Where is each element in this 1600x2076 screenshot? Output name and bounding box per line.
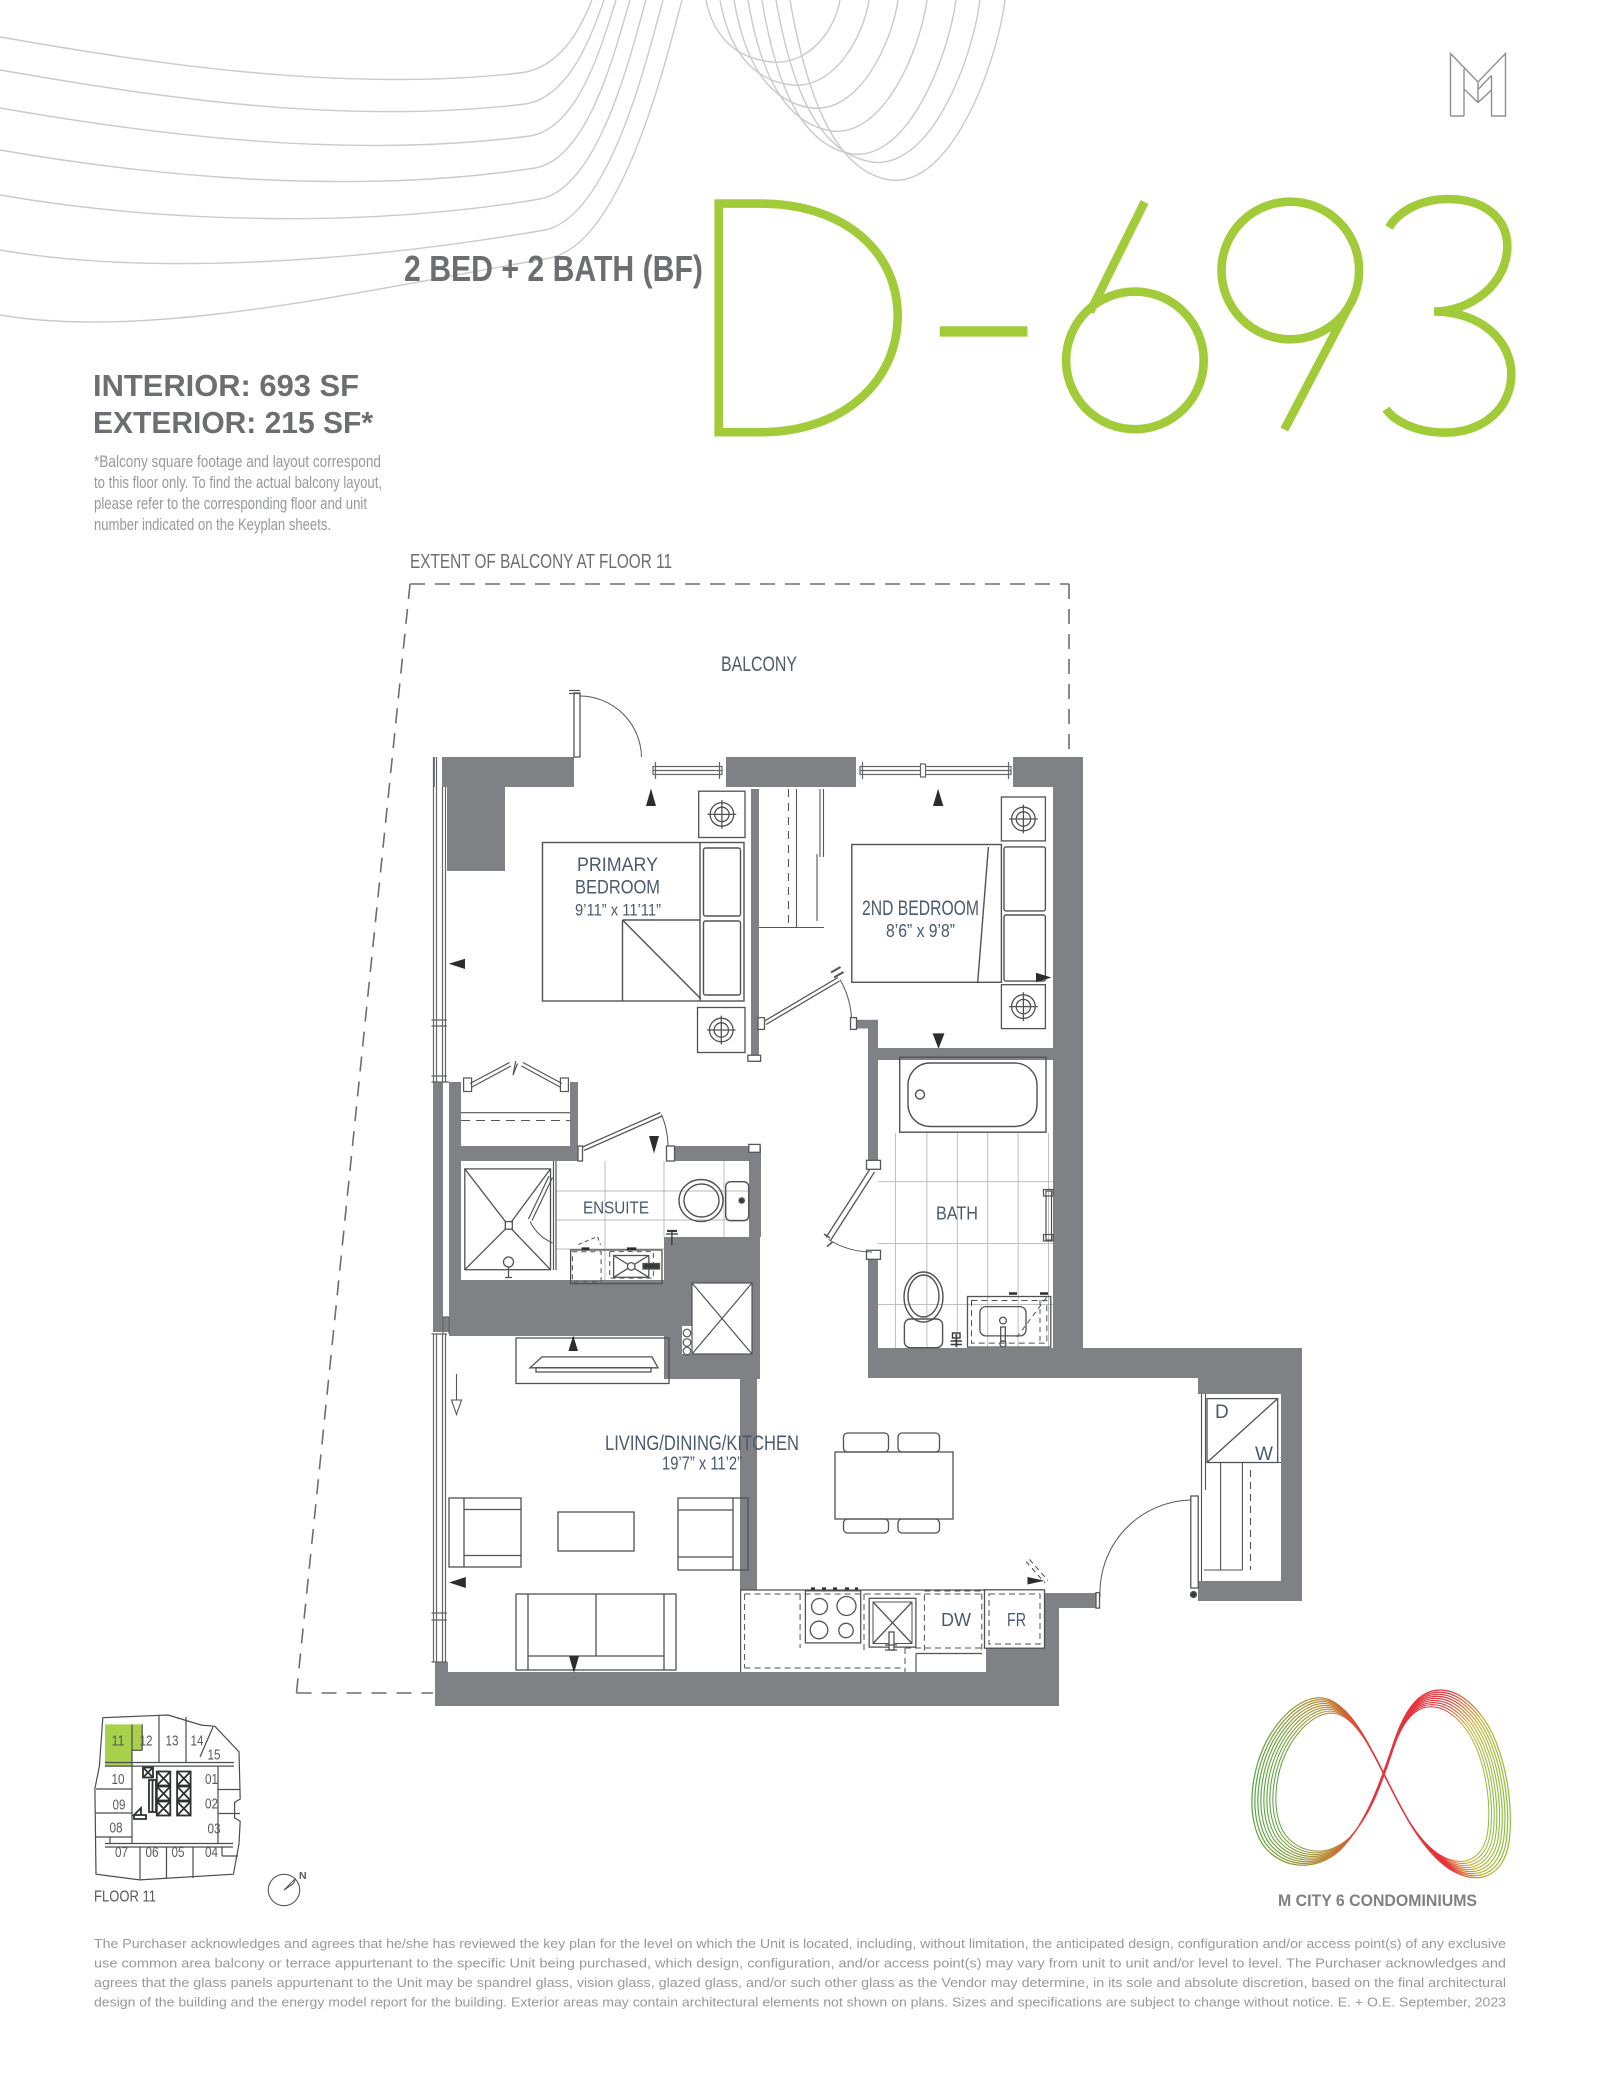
- svg-text:14: 14: [191, 1734, 204, 1750]
- svg-text:01: 01: [205, 1772, 218, 1788]
- svg-text:19’7” x 11’2”: 19’7” x 11’2”: [662, 1454, 742, 1474]
- svg-text:N: N: [299, 1870, 307, 1882]
- svg-text:10: 10: [112, 1772, 125, 1788]
- svg-text:LIVING/DINING/KITCHEN: LIVING/DINING/KITCHEN: [605, 1432, 799, 1455]
- svg-text:05: 05: [172, 1845, 185, 1861]
- svg-text:number indicated on the Keypla: number indicated on the Keyplan sheets.: [94, 516, 331, 534]
- svg-text:DW: DW: [941, 1610, 971, 1630]
- svg-text:13: 13: [166, 1734, 179, 1750]
- svg-text:8’6” x 9’8”: 8’6” x 9’8”: [886, 921, 955, 941]
- svg-text:15: 15: [208, 1748, 221, 1764]
- svg-text:W: W: [1255, 1444, 1273, 1465]
- svg-text:09: 09: [113, 1798, 126, 1814]
- svg-text:PRIMARY: PRIMARY: [577, 855, 658, 876]
- svg-text:03: 03: [208, 1822, 221, 1838]
- svg-text:11: 11: [112, 1734, 125, 1750]
- svg-text:ENSUITE: ENSUITE: [583, 1198, 649, 1218]
- svg-text:08: 08: [110, 1821, 123, 1837]
- svg-text:*Balcony square footage and la: *Balcony square footage and layout corre…: [94, 453, 381, 471]
- svg-text:EXTERIOR: 215 SF*: EXTERIOR: 215 SF*: [93, 405, 374, 440]
- svg-text:D: D: [1215, 1402, 1229, 1423]
- svg-text:M CITY 6 CONDOMINIUMS: M CITY 6 CONDOMINIUMS: [1278, 1891, 1477, 1910]
- svg-text:07: 07: [115, 1845, 128, 1861]
- svg-text:please refer to the correspond: please refer to the corresponding floor …: [94, 495, 367, 513]
- svg-text:INTERIOR: 693 SF: INTERIOR: 693 SF: [93, 368, 359, 403]
- svg-text:FLOOR 11: FLOOR 11: [94, 1889, 156, 1906]
- svg-text:design of the building and the: design of the building and the energy mo…: [94, 1995, 1506, 2010]
- svg-text:06: 06: [146, 1845, 159, 1861]
- svg-text:04: 04: [205, 1845, 218, 1861]
- svg-text:BATH: BATH: [936, 1203, 978, 1224]
- svg-text:9’11” x 11’11”: 9’11” x 11’11”: [575, 901, 661, 920]
- svg-text:12: 12: [140, 1734, 153, 1750]
- svg-text:BALCONY: BALCONY: [721, 653, 797, 676]
- svg-text:EXTENT OF BALCONY AT FLOOR 11: EXTENT OF BALCONY AT FLOOR 11: [410, 550, 672, 573]
- svg-text:BEDROOM: BEDROOM: [575, 878, 660, 899]
- svg-text:The Purchaser acknowledges and: The Purchaser acknowledges and agrees th…: [94, 1936, 1506, 1951]
- svg-text:agrees that the glass panels a: agrees that the glass panels appurtenant…: [94, 1975, 1506, 1990]
- svg-text:to this floor only. To find th: to this floor only. To find the actual b…: [94, 474, 382, 492]
- svg-text:2ND BEDROOM: 2ND BEDROOM: [862, 897, 979, 920]
- svg-text:FR: FR: [1007, 1610, 1026, 1630]
- svg-text:use common area balcony or ter: use common area balcony or terrace appur…: [94, 1956, 1506, 1971]
- svg-text:02: 02: [205, 1797, 218, 1813]
- svg-text:2 BED + 2 BATH (BF): 2 BED + 2 BATH (BF): [404, 248, 703, 289]
